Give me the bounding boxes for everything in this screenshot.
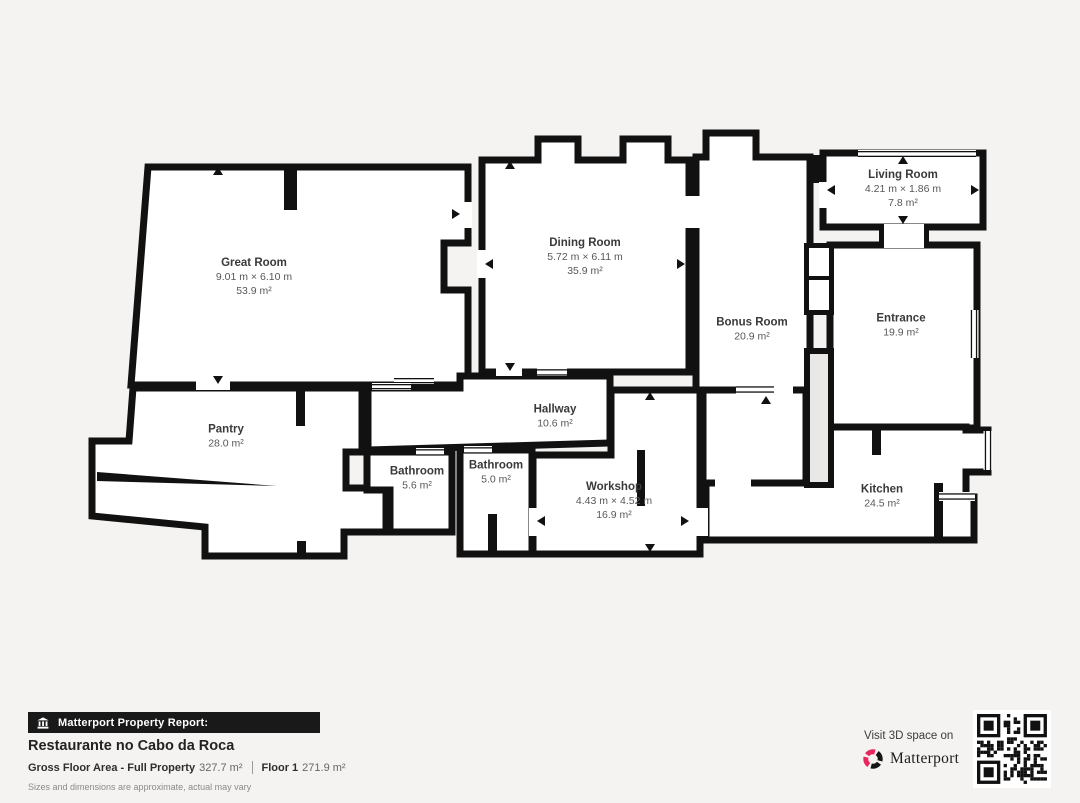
floor-label: Floor 1 xyxy=(262,762,299,774)
disclaimer-text: Sizes and dimensions are approximate, ac… xyxy=(28,782,251,792)
report-badge: Matterport Property Report: xyxy=(28,712,320,733)
visit-3d-text: Visit 3D space on xyxy=(864,730,953,742)
room-shape-bonus-room xyxy=(696,133,810,390)
room-shape-entrance xyxy=(830,245,977,428)
room-shape-utility-room xyxy=(703,390,806,483)
floorplan: Great Room 9.01 m × 6.10 m 53.9 m² Dinin… xyxy=(0,0,1080,660)
floor-value: 271.9 m² xyxy=(302,762,345,774)
room-walls xyxy=(92,133,988,556)
matterport-pinwheel-icon xyxy=(862,748,884,770)
room-shape-great-room xyxy=(131,167,468,385)
gross-floor-area-label: Gross Floor Area - Full Property xyxy=(28,762,195,774)
room-shape-living-room xyxy=(823,153,983,227)
matterport-wordmark: Matterport xyxy=(890,750,959,768)
floor-area-stats: Gross Floor Area - Full Property 327.7 m… xyxy=(28,761,346,774)
floorplan-drawing xyxy=(0,0,1080,660)
room-shape-pantry xyxy=(92,388,386,556)
qr-code xyxy=(973,710,1051,788)
stats-divider xyxy=(252,761,253,774)
room-shape-dining-room xyxy=(482,139,689,372)
property-title: Restaurante no Cabo da Roca xyxy=(28,738,234,754)
gross-floor-area-value: 327.7 m² xyxy=(199,762,242,774)
building-icon xyxy=(36,716,50,730)
property-report-page: Great Room 9.01 m × 6.10 m 53.9 m² Dinin… xyxy=(0,0,1080,803)
matterport-logo: Matterport xyxy=(862,748,959,770)
wall-chases xyxy=(804,243,834,488)
report-badge-label: Matterport Property Report: xyxy=(58,717,208,729)
